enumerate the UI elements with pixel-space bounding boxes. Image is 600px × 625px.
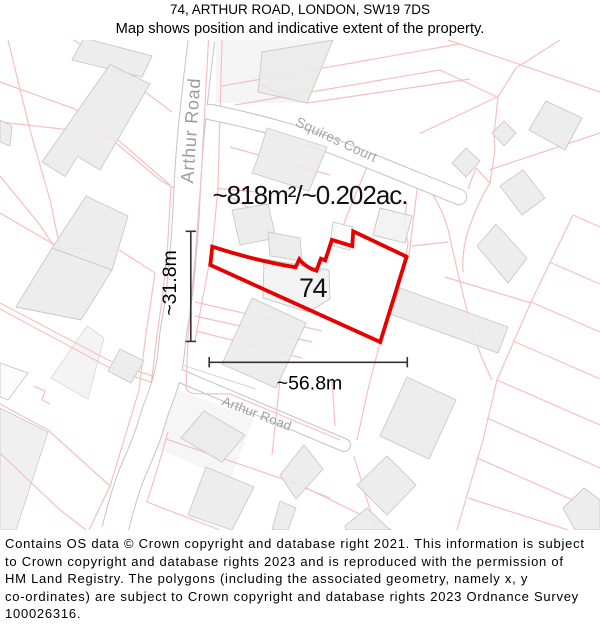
- svg-text:74: 74: [299, 273, 328, 303]
- svg-text:~31.8m: ~31.8m: [159, 250, 181, 316]
- svg-text:~56.8m: ~56.8m: [277, 373, 343, 395]
- svg-text:~818m²/~0.202ac.: ~818m²/~0.202ac.: [213, 180, 408, 210]
